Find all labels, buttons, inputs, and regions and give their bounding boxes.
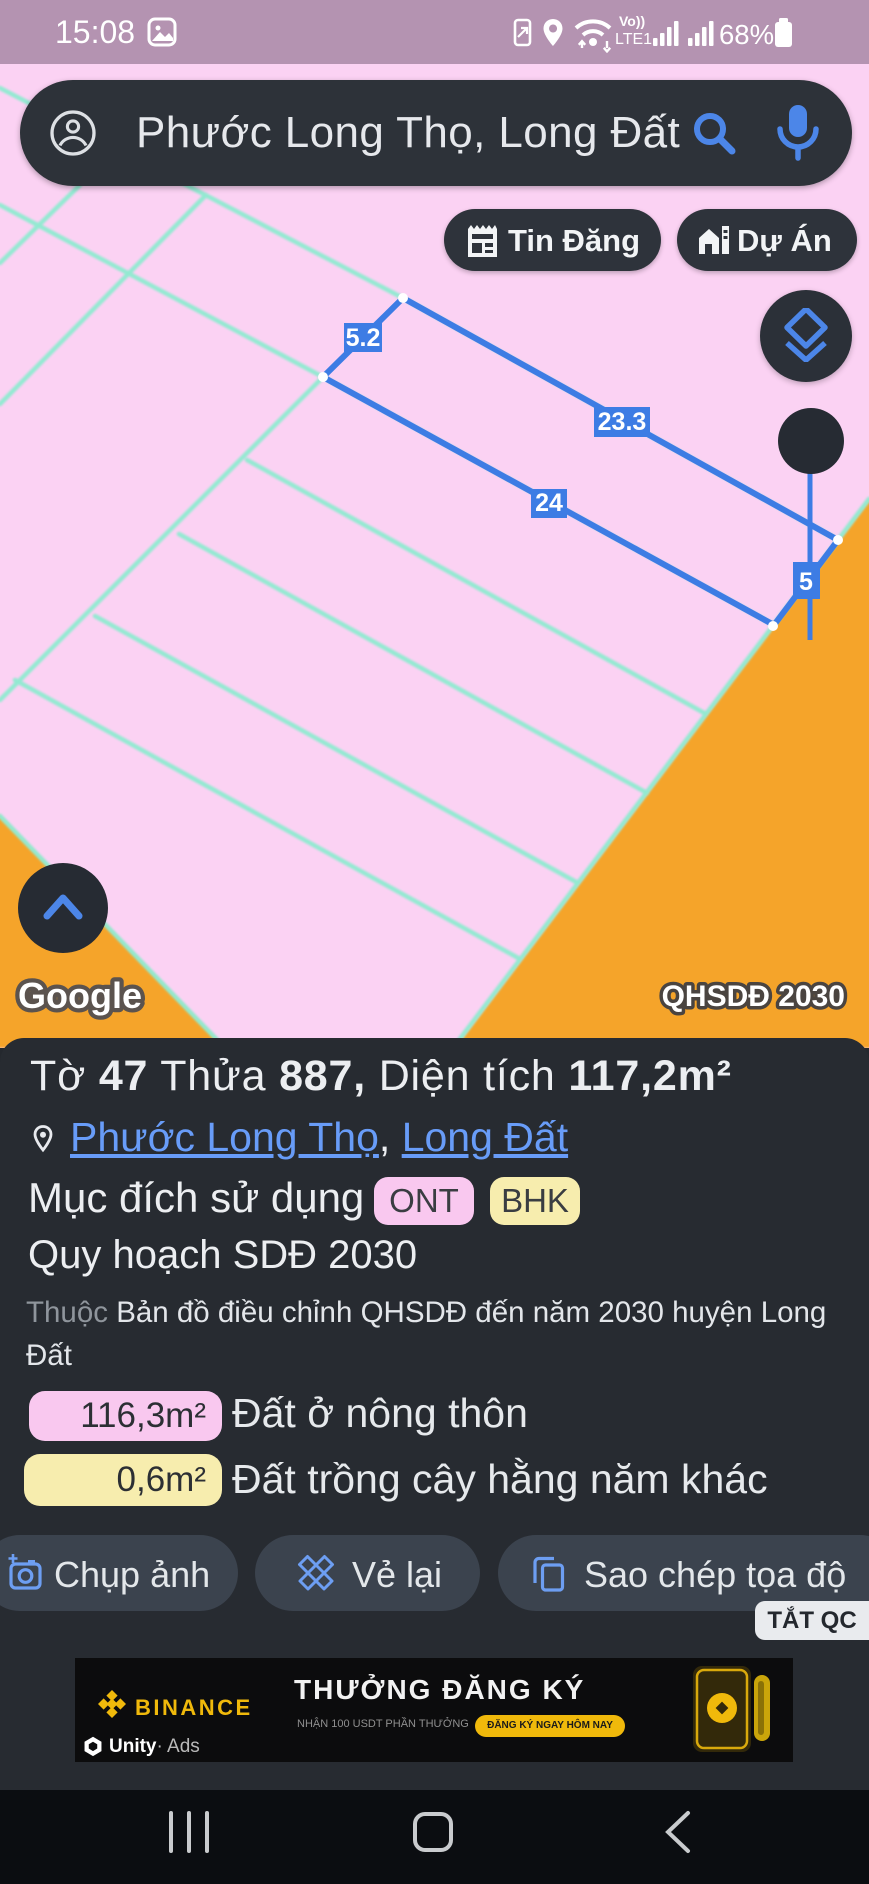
svg-text:24: 24 — [535, 489, 563, 517]
svg-text:5.2: 5.2 — [346, 324, 381, 352]
svg-text:5: 5 — [799, 568, 813, 596]
svg-text:23.3: 23.3 — [598, 408, 647, 436]
svg-text:Google: Google — [18, 975, 142, 1016]
svg-text:QHSDĐ 2030: QHSDĐ 2030 — [662, 980, 845, 1013]
svg-text:LTE1: LTE1 — [615, 31, 652, 48]
svg-text:68%: 68% — [719, 19, 774, 50]
svg-text:Vo)): Vo)) — [619, 13, 645, 29]
